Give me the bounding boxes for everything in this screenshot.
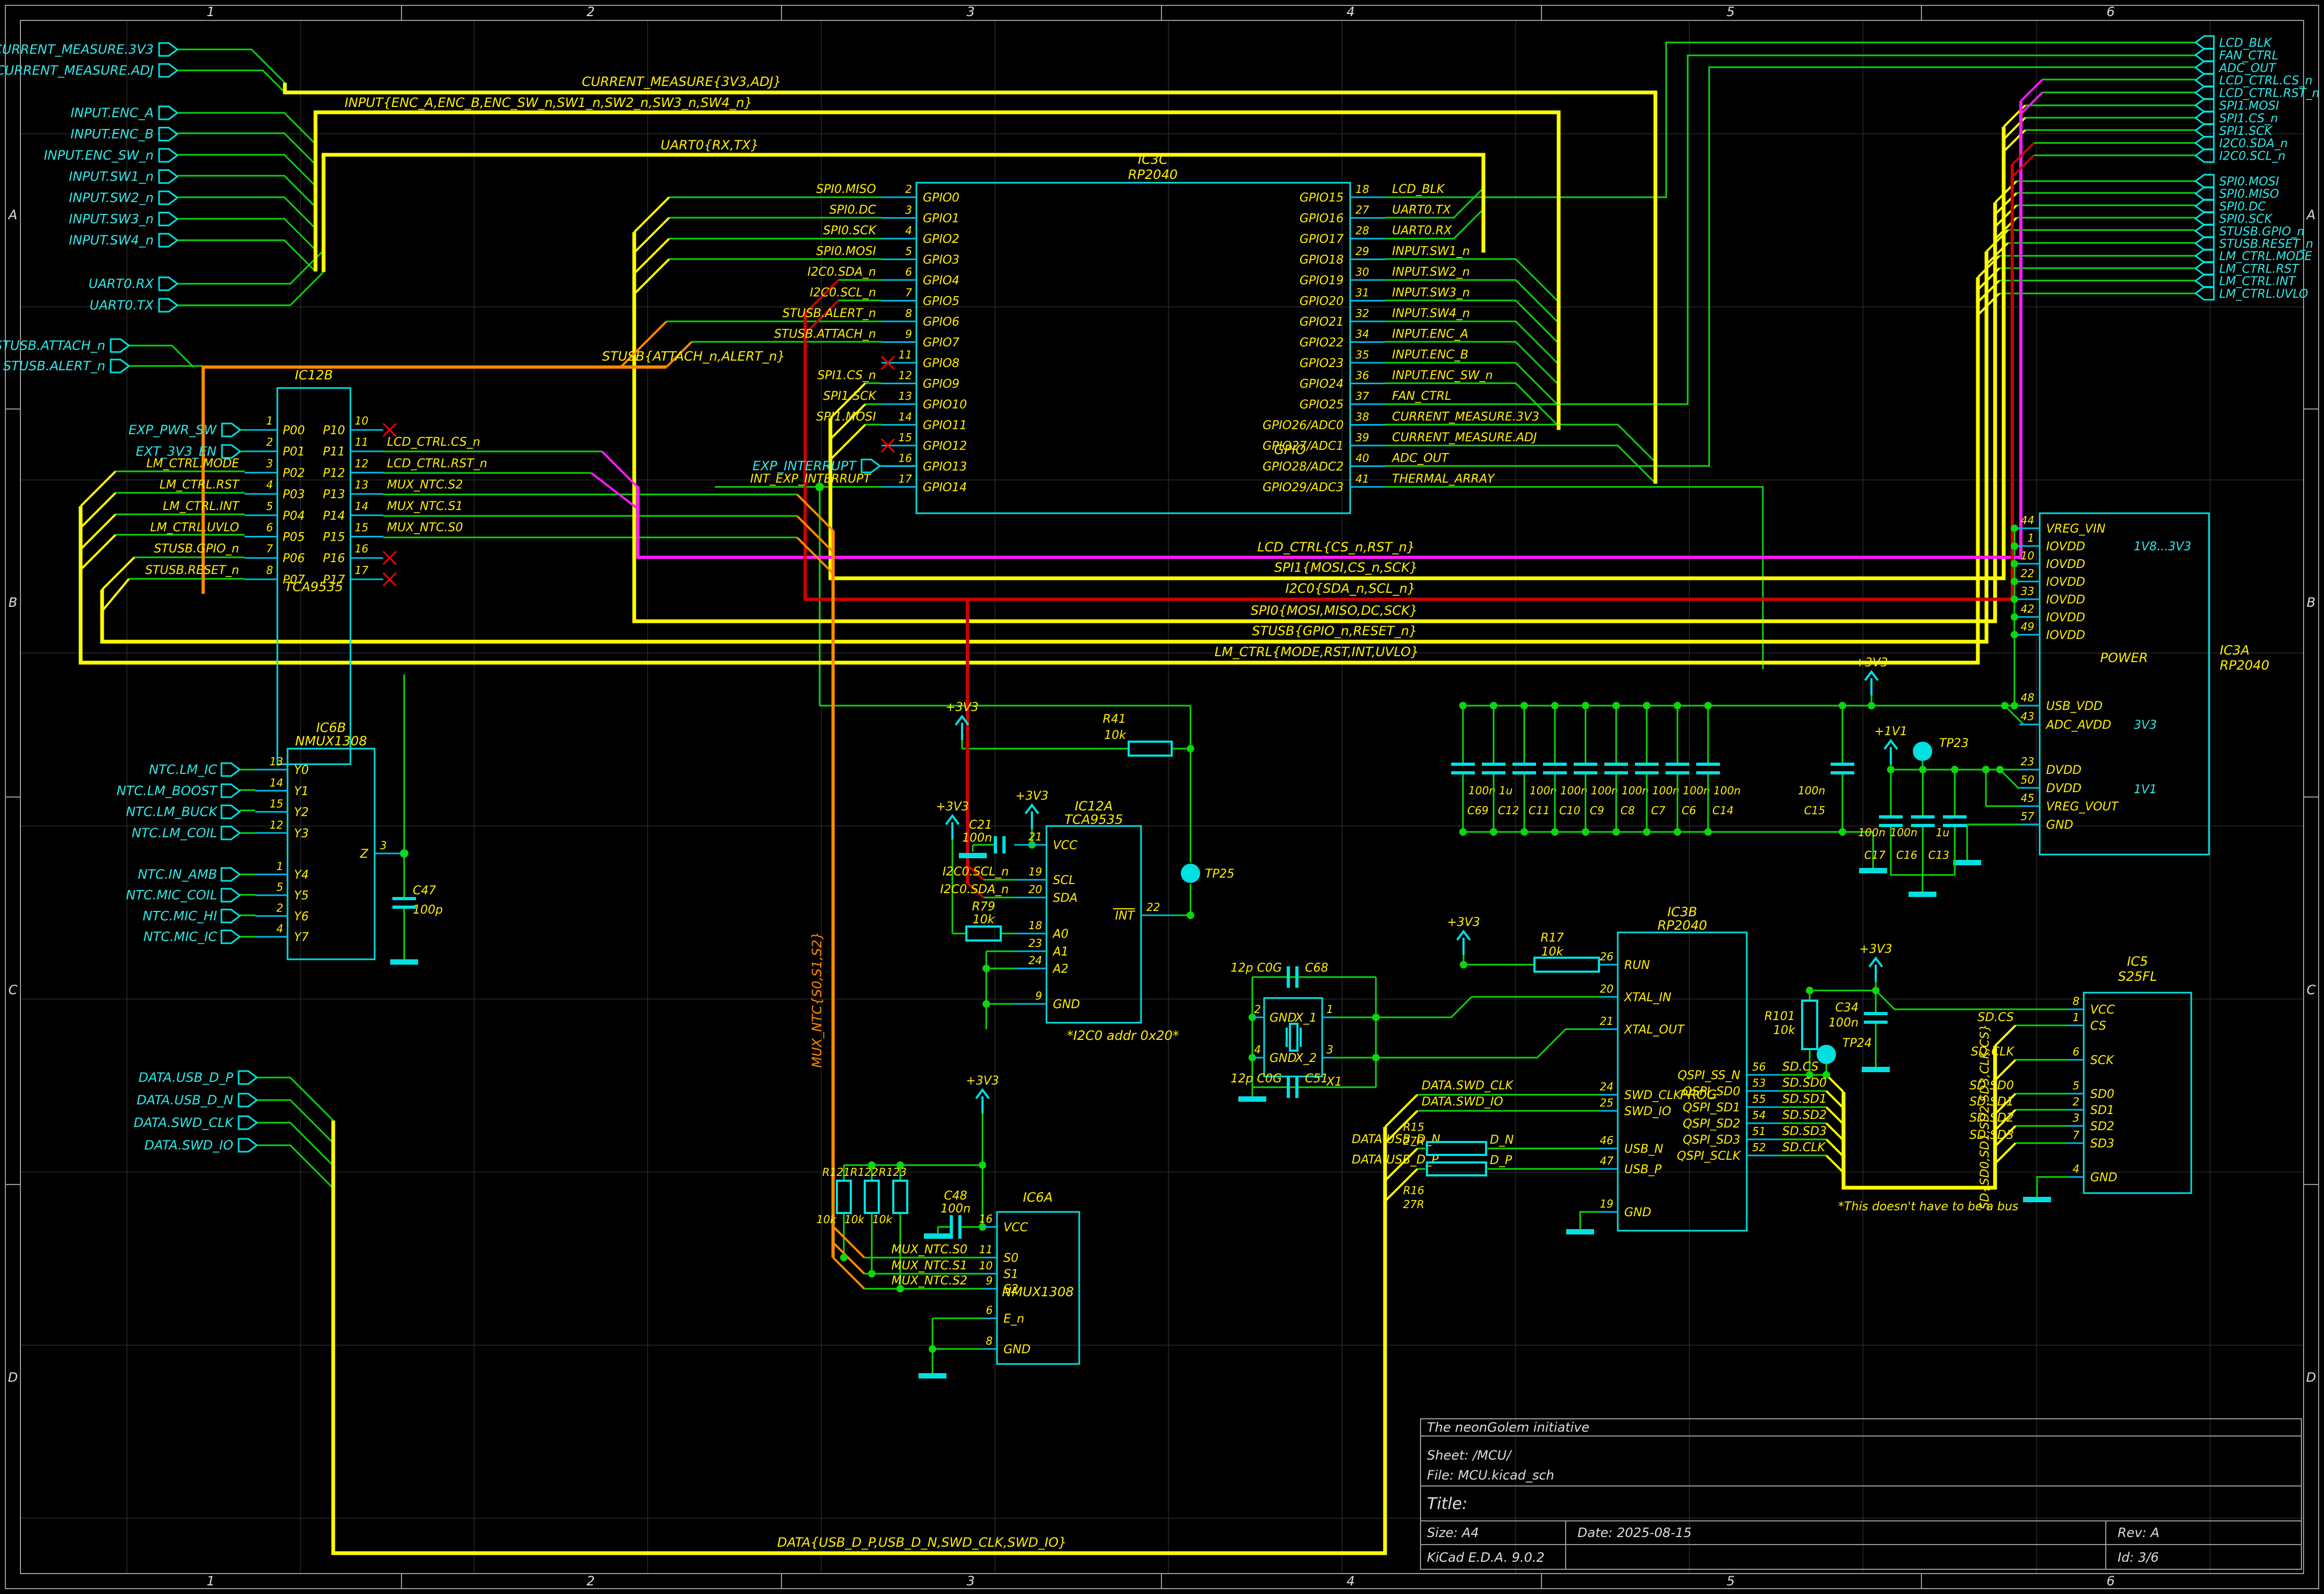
ic3a-part: RP2040 — [2220, 658, 2269, 673]
svg-text:2: 2 — [905, 183, 912, 196]
svg-text:SPI1.CS_n: SPI1.CS_n — [817, 369, 876, 383]
r101: R101 10k — [1764, 1001, 1817, 1049]
svg-text:23: 23 — [1029, 937, 1042, 950]
svg-text:GPIO6: GPIO6 — [923, 315, 959, 329]
svg-text:100n: 100n — [1468, 784, 1496, 797]
ic12b-right-pin: 10 P10 — [323, 414, 383, 437]
svg-text:QSPI_SD3: QSPI_SD3 — [1683, 1133, 1740, 1147]
cap: 100n C7 — [1635, 702, 1680, 836]
svg-text:14: 14 — [899, 411, 912, 423]
cap: 100n C9 — [1574, 702, 1618, 836]
svg-text:INPUT.SW2_n: INPUT.SW2_n — [1392, 265, 1470, 279]
svg-text:27R: 27R — [1403, 1135, 1424, 1147]
svg-text:SPI1.MOSI: SPI1.MOSI — [816, 411, 876, 424]
svg-text:6: 6 — [986, 1304, 993, 1317]
svg-text:10: 10 — [979, 1259, 993, 1272]
svg-text:C11: C11 — [1529, 804, 1550, 817]
bus-label-stusb-attach: STUSB{ATTACH_n,ALERT_n} — [602, 349, 785, 364]
hier-input-label: DATA.USB_D_P — [139, 1070, 257, 1085]
ic3c-left-pin: 4 GPIO2 SPI0.SCK — [823, 224, 960, 246]
svg-text:4: 4 — [905, 224, 912, 237]
svg-text:STUSB.GPIO_n: STUSB.GPIO_n — [2219, 225, 2305, 239]
svg-text:24: 24 — [1600, 1080, 1613, 1093]
svg-text:NTC.LM_IC: NTC.LM_IC — [149, 762, 217, 777]
bus-label-i2c0: I2C0{SDA_n,SCL_n} — [1286, 581, 1416, 596]
svg-text:MUX_NTC.S0: MUX_NTC.S0 — [892, 1243, 967, 1256]
ic12b-right-pin: 15 P15 MUX_NTC.S0 — [323, 521, 463, 544]
p1v1-label: +1V1 — [1874, 725, 1907, 738]
svg-text:21: 21 — [1600, 1015, 1613, 1028]
paper-size: Size: A4 — [1427, 1525, 1479, 1540]
ic3c-left-pin: 8 GPIO6 STUSB.ALERT_n — [783, 307, 960, 329]
svg-text:D_N: D_N — [1490, 1133, 1514, 1147]
svg-text:GPIO10: GPIO10 — [923, 398, 967, 412]
svg-text:SD3: SD3 — [2090, 1137, 2114, 1151]
svg-text:R79: R79 — [972, 900, 995, 914]
svg-text:21: 21 — [1029, 830, 1042, 843]
svg-text:100n: 100n — [1652, 784, 1680, 797]
svg-text:16: 16 — [899, 452, 912, 465]
c21: C21 100n — [959, 818, 1004, 856]
svg-text:GND: GND — [1003, 1343, 1030, 1356]
svg-text:6: 6 — [266, 521, 273, 534]
svg-text:LCD_CTRL.RST_n: LCD_CTRL.RST_n — [2219, 87, 2320, 100]
p3v3-label: +3V3 — [936, 800, 969, 814]
svg-text:CURRENT_MEASURE.ADJ: CURRENT_MEASURE.ADJ — [0, 63, 154, 78]
tp23: TP23 — [1913, 737, 1969, 761]
svg-text:22: 22 — [2021, 567, 2034, 580]
svg-text:100n: 100n — [1530, 784, 1557, 797]
ic6b-pin: 5 Y5 NTC.MIC_COIL — [126, 881, 309, 903]
svg-text:R122: R122 — [850, 1166, 878, 1179]
svg-text:54: 54 — [1752, 1109, 1766, 1122]
svg-text:3: 3 — [380, 839, 387, 852]
svg-text:TP24: TP24 — [1842, 1037, 1872, 1050]
svg-text:SPI0.DC: SPI0.DC — [2219, 200, 2266, 213]
svg-text:SD1: SD1 — [2090, 1104, 2114, 1117]
ic3c-right-pin: 32 GPIO21 INPUT.SW4_n — [1300, 307, 1470, 329]
svg-text:GPIO8: GPIO8 — [923, 357, 959, 370]
svg-text:20: 20 — [1600, 982, 1613, 995]
ic12b-right-pin: 12 P12 LCD_CTRL.RST_n — [323, 457, 487, 480]
svg-text:SPI0.DC: SPI0.DC — [829, 204, 877, 217]
svg-text:6: 6 — [905, 265, 912, 278]
ic6b-pin: 1 Y4 NTC.IN_AMB — [138, 860, 309, 882]
svg-text:Y2: Y2 — [294, 806, 309, 820]
svg-text:INPUT.SW4_n: INPUT.SW4_n — [69, 233, 154, 248]
svg-text:11: 11 — [979, 1243, 993, 1256]
svg-text:1: 1 — [2072, 1011, 2079, 1024]
svg-text:VCC: VCC — [2090, 1003, 2115, 1017]
svg-text:SCL: SCL — [1053, 874, 1075, 887]
date: Date: 2025-08-15 — [1577, 1525, 1692, 1540]
sheet-id: Id: 3/6 — [2118, 1550, 2159, 1565]
svg-text:CURRENT_MEASURE.3V3: CURRENT_MEASURE.3V3 — [1392, 411, 1539, 424]
ic3c-left-pin: 13 GPIO10 SPI1.SCK — [823, 390, 967, 412]
ic3c-right-pin: 18 GPIO15 LCD_BLK — [1300, 183, 1445, 205]
frame-col-label: 6 — [2106, 4, 2114, 19]
svg-text:GPIO21: GPIO21 — [1300, 315, 1344, 329]
iovdd-voltage-note: 1V8...3V3 — [2134, 540, 2191, 554]
svg-text:15: 15 — [899, 431, 912, 444]
svg-text:LM_CTRL.INT: LM_CTRL.INT — [163, 500, 240, 513]
ic3c-right-pin: 37 GPIO25 FAN_CTRL — [1300, 390, 1451, 412]
svg-text:EXP_PWR_SW: EXP_PWR_SW — [128, 422, 217, 437]
svg-text:30: 30 — [1355, 265, 1369, 278]
svg-text:NTC.LM_BUCK: NTC.LM_BUCK — [126, 805, 218, 820]
svg-text:SPI1.CS_n: SPI1.CS_n — [2219, 112, 2278, 125]
p3v3-label: +3V3 — [966, 1074, 999, 1088]
svg-text:GPIO28/ADC2: GPIO28/ADC2 — [1263, 461, 1344, 474]
svg-text:C8: C8 — [1620, 804, 1635, 817]
svg-text:SPI0.MOSI: SPI0.MOSI — [2219, 175, 2279, 189]
sd-net-label: SD.SD1 — [1782, 1093, 1827, 1106]
svg-text:LM_CTRL.UVLO: LM_CTRL.UVLO — [2219, 288, 2308, 301]
svg-text:18: 18 — [1355, 183, 1369, 196]
ic3a-pin: 44 VREG_VIN — [2011, 514, 2105, 536]
svg-text:12: 12 — [899, 369, 912, 382]
svg-text:GPIO4: GPIO4 — [923, 274, 959, 288]
svg-text:6: 6 — [2072, 1045, 2079, 1058]
svg-text:VREG_VOUT: VREG_VOUT — [2046, 800, 2119, 814]
ic6b-pin: 14 Y1 NTC.LM_BOOST — [117, 776, 309, 798]
svg-text:I2C0.SCL_n: I2C0.SCL_n — [810, 286, 876, 300]
c51: 12p C0G C51 — [1231, 1072, 1329, 1098]
svg-text:INPUT.SW2_n: INPUT.SW2_n — [69, 190, 154, 205]
svg-text:40: 40 — [1355, 452, 1369, 465]
svg-text:C17: C17 — [1864, 849, 1886, 861]
ic3c-left-pin: 6 GPIO4 I2C0.SDA_n — [807, 265, 959, 288]
svg-text:STUSB.RESET_n: STUSB.RESET_n — [145, 564, 239, 577]
cap: 100n C11 — [1512, 702, 1557, 836]
schematic-sheet: 123456 123456 ABCD ABCD — [0, 0, 2324, 1594]
hier-input-label: STUSB.ALERT_n — [3, 358, 129, 374]
svg-text:1: 1 — [276, 860, 283, 873]
frame-row-label: D — [2306, 1370, 2316, 1385]
hier-input-label: UART0.TX — [90, 298, 177, 313]
svg-text:3: 3 — [2072, 1111, 2079, 1124]
svg-text:TP23: TP23 — [1939, 737, 1969, 750]
c15: 100n C15 — [1798, 764, 1854, 817]
svg-text:I2C0.SCL_n: I2C0.SCL_n — [2219, 150, 2285, 163]
dvdd-voltage-note: 1V1 — [2134, 783, 2157, 796]
bus-label-spi0: SPI0{MOSI,MISO,DC,SCK} — [1251, 603, 1418, 618]
ic12b-left-pin: 7 P06 STUSB.GPIO_n — [154, 542, 305, 565]
ic5-part: S25FL — [2118, 969, 2157, 984]
svg-text:I2C0.SCL_n: I2C0.SCL_n — [943, 865, 1009, 879]
svg-text:Y4: Y4 — [294, 868, 309, 882]
svg-text:NTC.IN_AMB: NTC.IN_AMB — [138, 867, 217, 882]
svg-text:17: 17 — [899, 472, 913, 485]
svg-text:Z: Z — [360, 848, 369, 861]
svg-text:48: 48 — [2021, 691, 2034, 704]
hier-input-label: CURRENT_MEASURE.3V3 — [0, 42, 177, 57]
svg-text:19: 19 — [1600, 1197, 1613, 1210]
svg-text:12: 12 — [270, 818, 283, 831]
x1-crystal: 2GND 4GND 1X_1 3X_2 X1 12p C0G C68 12p C… — [1231, 961, 1342, 1099]
svg-text:LCD_BLK: LCD_BLK — [2219, 37, 2272, 50]
ic3c-right-pin: 30 GPIO19 INPUT.SW2_n — [1300, 265, 1470, 288]
grid-lines — [20, 20, 2304, 1574]
svg-text:P12: P12 — [323, 466, 345, 480]
svg-text:XTAL_OUT: XTAL_OUT — [1624, 1023, 1685, 1037]
svg-text:Y6: Y6 — [294, 910, 309, 923]
ic12b-left-pin: 5 P04 LM_CTRL.INT — [163, 500, 305, 523]
ic3c-right-pin: 36 GPIO24 INPUT.ENC_SW_n — [1300, 369, 1493, 391]
hier-input-label: UART0.RX — [89, 276, 177, 291]
p3v3-label: +3V3 — [1015, 789, 1048, 803]
c48: C48 100n — [924, 1189, 971, 1239]
svg-text:C34: C34 — [1835, 1001, 1859, 1015]
svg-text:41: 41 — [1355, 472, 1369, 485]
svg-text:100n: 100n — [1683, 784, 1710, 797]
svg-text:R121: R121 — [822, 1166, 850, 1179]
svg-text:INPUT.ENC_A: INPUT.ENC_A — [70, 105, 154, 120]
company-name: The neonGolem initiative — [1427, 1420, 1589, 1435]
svg-text:GPIO9: GPIO9 — [923, 378, 959, 391]
svg-text:RUN: RUN — [1624, 959, 1650, 972]
svg-text:17: 17 — [355, 564, 369, 577]
svg-text:3: 3 — [1326, 1043, 1333, 1056]
svg-text:P16: P16 — [323, 552, 345, 565]
svg-text:GND: GND — [1624, 1206, 1651, 1219]
svg-text:P13: P13 — [323, 488, 345, 501]
svg-text:QSPI_SD2: QSPI_SD2 — [1683, 1117, 1740, 1131]
svg-text:100n: 100n — [1622, 784, 1649, 797]
svg-text:GPIO12: GPIO12 — [923, 440, 967, 453]
svg-text:10k: 10k — [872, 1213, 893, 1226]
exp-interrupt-hier-label: EXP_INTERRUPT — [752, 458, 880, 473]
svg-text:C16: C16 — [1896, 849, 1917, 861]
ic3c-left-pin: 9 GPIO7 STUSB.ATTACH_n — [774, 328, 959, 350]
svg-text:P14: P14 — [323, 509, 345, 523]
c34: C34 100n — [1828, 1001, 1890, 1069]
svg-text:SWD_IO: SWD_IO — [1624, 1105, 1671, 1118]
ic3c-left-pin: 7 GPIO5 I2C0.SCL_n — [810, 286, 960, 308]
svg-text:100n: 100n — [962, 831, 992, 845]
bus-label-stusb: STUSB{GPIO_n,RESET_n} — [1252, 623, 1417, 638]
ic12b-right-pin: 13 P13 MUX_NTC.S2 — [323, 478, 463, 501]
svg-text:34: 34 — [1355, 328, 1369, 341]
hier-input-label: INPUT.ENC_SW_n — [44, 148, 177, 163]
svg-text:26: 26 — [1600, 950, 1613, 963]
svg-text:QSPI_SD1: QSPI_SD1 — [1683, 1101, 1740, 1115]
svg-text:22: 22 — [1146, 901, 1160, 914]
svg-text:32: 32 — [1355, 307, 1369, 320]
ic3c-left-pin: 16 GPIO13 — [881, 452, 967, 474]
svg-text:27R: 27R — [1403, 1198, 1424, 1211]
svg-text:LCD_CTRL.CS_n: LCD_CTRL.CS_n — [387, 436, 480, 449]
ic12b-right-pin: 16 P16 — [323, 542, 383, 565]
ic6a-ref: IC6A — [1023, 1190, 1053, 1205]
svg-text:LCD_CTRL.RST_n: LCD_CTRL.RST_n — [387, 457, 487, 470]
svg-text:100p: 100p — [413, 903, 443, 917]
tp25: TP25 — [1181, 864, 1235, 883]
svg-text:100n: 100n — [1828, 1016, 1859, 1030]
ic12b-right-pin: 11 P11 LCD_CTRL.CS_n — [323, 436, 480, 459]
svg-text:1: 1 — [1326, 1003, 1333, 1016]
c47: C47 100p — [390, 884, 443, 962]
ic3c-right-pin: 39 GPIO27/ADC1 CURRENT_MEASURE.ADJ — [1263, 431, 1537, 453]
c68: 12p C0G C68 — [1231, 961, 1329, 988]
ic12a-ref: IC12A — [1075, 799, 1113, 814]
frame-col-label: 1 — [206, 1574, 214, 1589]
svg-text:GPIO23: GPIO23 — [1300, 357, 1344, 370]
hier-output-label: LM_CTRL.UVLO — [2196, 287, 2308, 301]
svg-text:INPUT.ENC_B: INPUT.ENC_B — [70, 127, 154, 142]
svg-text:25: 25 — [1600, 1096, 1613, 1109]
svg-text:FAN_CTRL: FAN_CTRL — [1392, 390, 1451, 403]
ic6b-pin: 13 Y0 NTC.LM_IC — [149, 755, 309, 777]
svg-text:STUSB.ATTACH_n: STUSB.ATTACH_n — [774, 328, 876, 341]
svg-text:SPI1.SCK: SPI1.SCK — [2219, 125, 2273, 138]
svg-text:SPI0.MISO: SPI0.MISO — [816, 183, 876, 196]
ic6b-pin: 12 Y3 NTC.LM_COIL — [132, 818, 309, 841]
svg-text:P15: P15 — [323, 531, 345, 544]
svg-text:R123: R123 — [879, 1166, 907, 1179]
svg-text:5: 5 — [266, 500, 273, 513]
svg-text:4: 4 — [276, 922, 283, 935]
wires-green — [116, 42, 2196, 1373]
ic-ic3a: IC3A RP2040 POWER 44 VREG_VIN 1 IOVDD 10… — [1859, 513, 2269, 894]
file-name: File: MCU.kicad_sch — [1427, 1468, 1554, 1483]
frame-row-label: B — [2307, 595, 2315, 610]
svg-text:16: 16 — [979, 1212, 993, 1225]
svg-text:GND: GND — [2090, 1171, 2117, 1184]
svg-text:MUX_NTC.S1: MUX_NTC.S1 — [892, 1259, 967, 1273]
svg-text:USB_N: USB_N — [1624, 1143, 1663, 1156]
svg-text:GPIO22: GPIO22 — [1300, 336, 1344, 350]
ic3c-left-pin: 15 GPIO12 — [881, 431, 967, 453]
svg-text:45: 45 — [2021, 792, 2034, 805]
svg-text:DVDD: DVDD — [2046, 782, 2082, 795]
svg-text:INPUT.SW1_n: INPUT.SW1_n — [69, 169, 154, 184]
svg-text:STUSB.ALERT_n: STUSB.ALERT_n — [3, 358, 105, 374]
ic12b-left-pin: 3 P02 LM_CTRL.MODE — [146, 457, 305, 480]
svg-text:MUX_NTC.S2: MUX_NTC.S2 — [892, 1274, 967, 1288]
svg-text:5: 5 — [276, 881, 283, 894]
svg-text:SPI0.SCK: SPI0.SCK — [823, 224, 877, 238]
svg-text:IOVDD: IOVDD — [2046, 576, 2085, 589]
svg-text:13: 13 — [270, 755, 283, 768]
svg-text:SPI1.SCK: SPI1.SCK — [823, 390, 877, 403]
svg-text:SDA: SDA — [1053, 892, 1078, 905]
svg-text:P06: P06 — [283, 552, 305, 565]
svg-text:MUX_NTC.S2: MUX_NTC.S2 — [387, 478, 463, 492]
svg-text:INPUT.SW1_n: INPUT.SW1_n — [1392, 245, 1470, 259]
svg-text:15: 15 — [355, 521, 368, 534]
svg-text:USB_P: USB_P — [1624, 1163, 1662, 1176]
svg-text:A0: A0 — [1052, 928, 1068, 941]
svg-text:Y0: Y0 — [294, 764, 309, 777]
svg-text:46: 46 — [1600, 1134, 1613, 1147]
svg-text:LM_CTRL.RST: LM_CTRL.RST — [2219, 262, 2300, 276]
bus-label-lm: LM_CTRL{MODE,RST,INT,UVLO} — [1215, 644, 1419, 659]
svg-text:R17: R17 — [1540, 931, 1563, 945]
bus-label-lcd: LCD_CTRL{CS_n,RST_n} — [1257, 540, 1415, 555]
hier-input-label: DATA.SWD_CLK — [134, 1115, 257, 1130]
ic6b-ref: IC6B — [316, 720, 346, 735]
hier-input-label: INPUT.SW1_n — [69, 169, 177, 184]
svg-text:100n: 100n — [1713, 784, 1741, 797]
svg-text:P01: P01 — [283, 446, 305, 459]
svg-text:10k: 10k — [816, 1213, 837, 1226]
svg-text:R15: R15 — [1403, 1121, 1424, 1133]
p3v3-label: +3V3 — [945, 701, 978, 714]
svg-text:EXP_INTERRUPT: EXP_INTERRUPT — [752, 458, 857, 473]
data-swd-io-label: DATA.SWD_IO — [1422, 1095, 1503, 1109]
svg-text:19: 19 — [1029, 865, 1042, 878]
frame-col-label: 2 — [586, 4, 594, 19]
ic3c-right-pin: 31 GPIO20 INPUT.SW3_n — [1300, 286, 1470, 308]
svg-text:8: 8 — [266, 564, 273, 577]
cap: 100n C6 — [1666, 702, 1710, 836]
svg-text:P03: P03 — [283, 488, 305, 501]
ic3c-right-pin: 41 GPIO29/ADC3 THERMAL_ARRAY — [1263, 472, 1495, 494]
svg-text:2: 2 — [1254, 1003, 1261, 1016]
svg-text:UART0.TX: UART0.TX — [90, 298, 154, 313]
svg-text:QSPI_SCLK: QSPI_SCLK — [1677, 1150, 1741, 1163]
svg-text:50: 50 — [2021, 773, 2034, 786]
svg-text:P07: P07 — [283, 573, 305, 587]
frame-col-label: 3 — [966, 4, 974, 19]
int-exp-interrupt-label: INT_EXP_INTERRUPT — [750, 472, 872, 486]
svg-text:100n: 100n — [1858, 826, 1885, 839]
svg-text:8: 8 — [905, 307, 912, 320]
svg-text:9: 9 — [1035, 989, 1042, 1002]
svg-text:GPIO16: GPIO16 — [1300, 212, 1344, 226]
sd-net-label: SD.CLK — [1782, 1141, 1826, 1154]
svg-text:USB_VDD: USB_VDD — [2046, 700, 2103, 713]
svg-text:8: 8 — [986, 1334, 993, 1347]
svg-text:R101: R101 — [1764, 1010, 1795, 1023]
svg-text:INPUT.ENC_B: INPUT.ENC_B — [1392, 348, 1468, 362]
ic12a-part: TCA9535 — [1065, 812, 1123, 827]
svg-text:SD.CLK: SD.CLK — [1971, 1045, 2015, 1059]
svg-text:GND: GND — [1269, 1052, 1296, 1065]
svg-text:FAN_CTRL: FAN_CTRL — [2219, 49, 2278, 62]
svg-text:Y3: Y3 — [294, 827, 309, 841]
svg-text:STUSB.ATTACH_n: STUSB.ATTACH_n — [0, 338, 105, 353]
svg-text:GPIO2: GPIO2 — [923, 233, 959, 246]
svg-text:52: 52 — [1752, 1141, 1766, 1154]
svg-text:14: 14 — [270, 776, 283, 789]
svg-text:A2: A2 — [1052, 963, 1068, 976]
svg-text:12p C0G: 12p C0G — [1231, 961, 1282, 975]
svg-text:2: 2 — [266, 436, 273, 449]
svg-text:GPIO5: GPIO5 — [923, 295, 959, 308]
svg-text:DVDD: DVDD — [2046, 764, 2082, 777]
hier-input-label: STUSB.ATTACH_n — [0, 338, 129, 353]
svg-text:IOVDD: IOVDD — [2046, 629, 2085, 642]
svg-text:IOVDD: IOVDD — [2046, 593, 2085, 607]
svg-text:LM_CTRL.RST: LM_CTRL.RST — [160, 478, 240, 492]
svg-text:P11: P11 — [323, 446, 345, 459]
svg-text:LCD_BLK: LCD_BLK — [1392, 183, 1445, 196]
svg-text:INPUT.ENC_SW_n: INPUT.ENC_SW_n — [44, 148, 154, 163]
svg-text:7: 7 — [2072, 1129, 2079, 1141]
svg-text:14: 14 — [355, 500, 368, 513]
ic-ic6b: IC6B NMUX1308 13 Y0 NTC.LM_IC 14 Y1 NTC.… — [117, 720, 443, 962]
svg-text:VCC: VCC — [1053, 839, 1078, 852]
svg-text:UART0.TX: UART0.TX — [1392, 204, 1451, 217]
svg-text:100n: 100n — [1560, 784, 1588, 797]
svg-text:I2C0.SDA_n: I2C0.SDA_n — [2219, 137, 2288, 150]
svg-text:P00: P00 — [283, 424, 305, 437]
svg-text:STUSB.RESET_n: STUSB.RESET_n — [2219, 238, 2313, 251]
frame-col-label: 2 — [586, 1574, 594, 1589]
title-block: The neonGolem initiative Sheet: /MCU/ Fi… — [1421, 1419, 2301, 1569]
